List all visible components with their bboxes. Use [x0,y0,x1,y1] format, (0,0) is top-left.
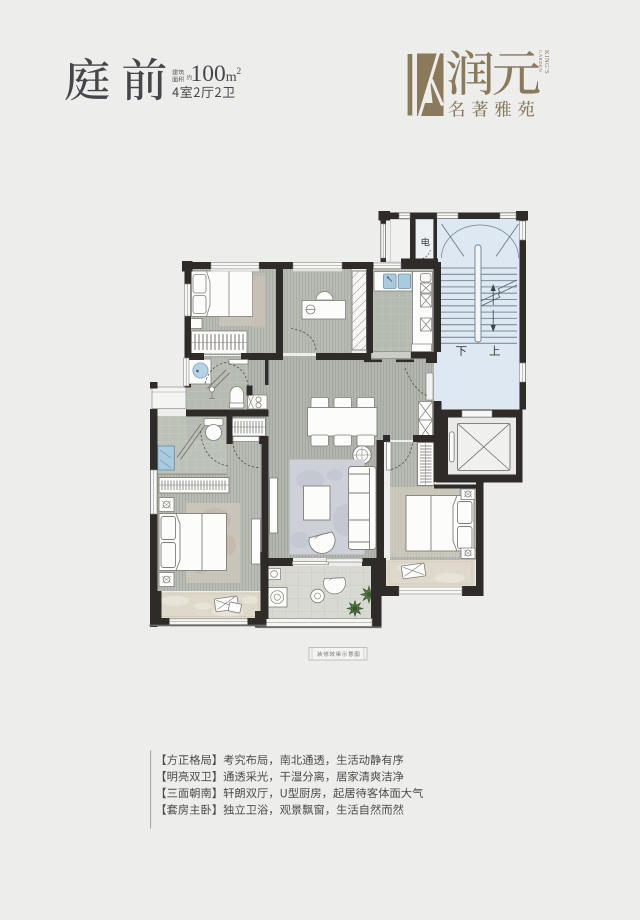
svg-text:KING'S: KING'S [543,50,550,74]
svg-text:GARDEN: GARDEN [538,50,543,72]
